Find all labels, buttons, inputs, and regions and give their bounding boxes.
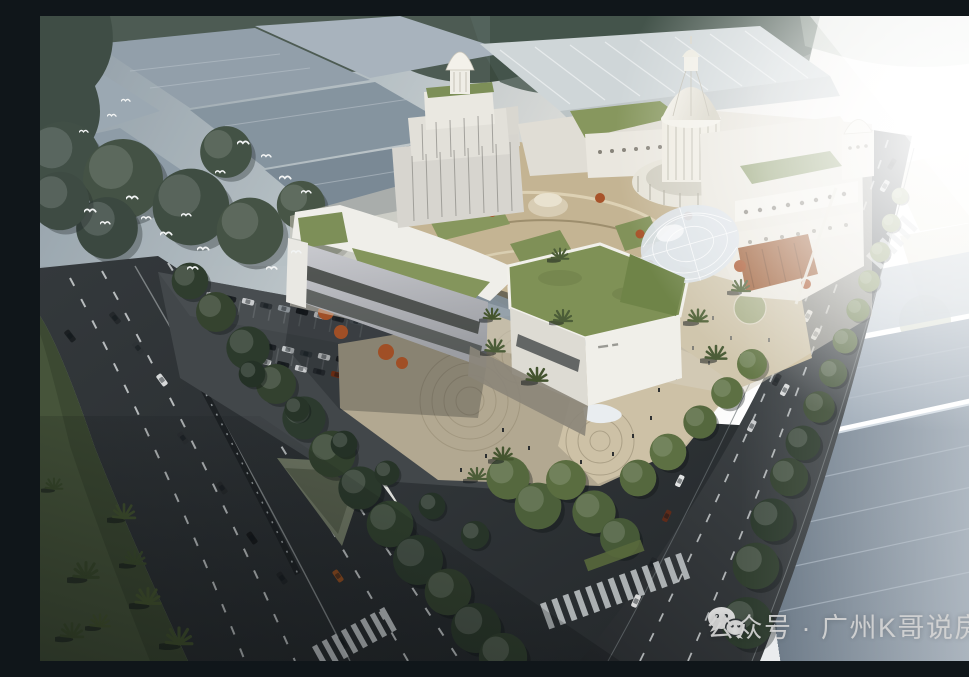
- aerial-rendering-screenshot: 公众号 · 广州K哥说房: [40, 16, 969, 661]
- aerial-rendering: [40, 16, 969, 661]
